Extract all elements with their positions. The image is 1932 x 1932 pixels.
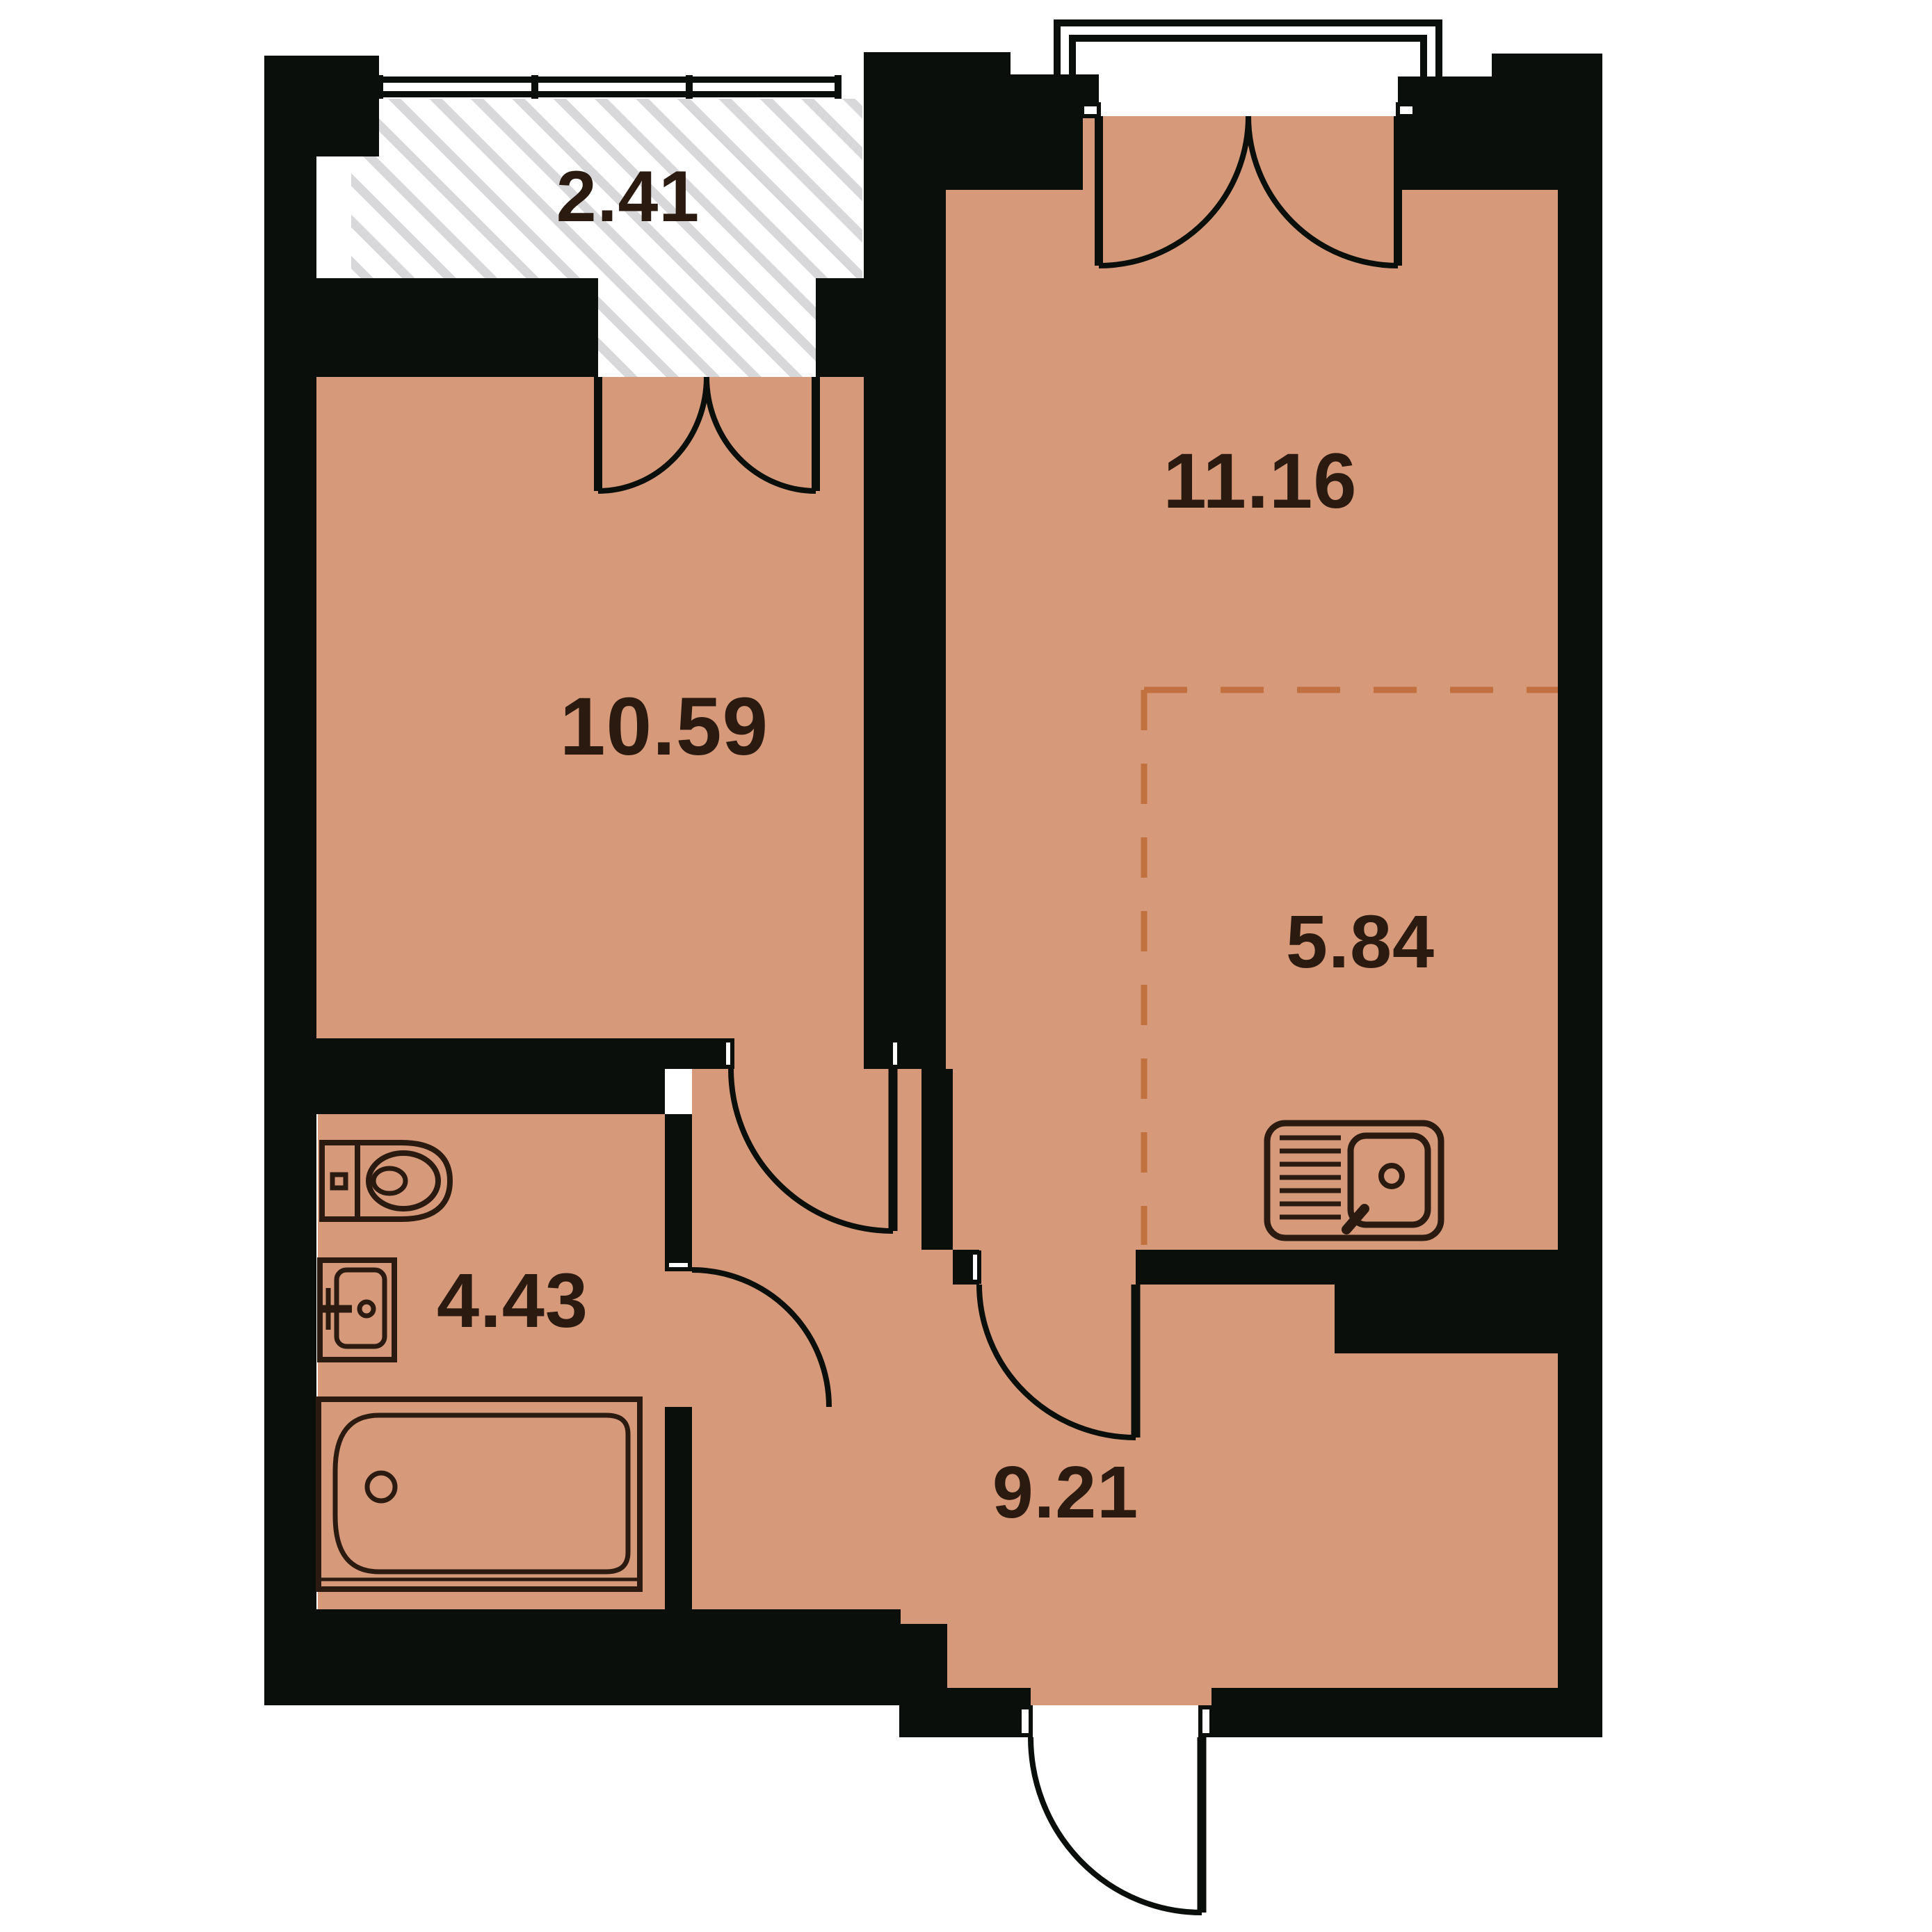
balcony-area-label: 2.41 — [556, 156, 700, 237]
open-balcony-outline — [1057, 23, 1439, 77]
wall-pillar-living-right — [1398, 77, 1492, 190]
wall-right-exterior — [1558, 190, 1602, 1737]
wall-corridor-top-left — [665, 1038, 731, 1069]
floor-door-threshold-bathroom — [665, 1270, 692, 1407]
wall-bottom-left-of-door — [899, 1688, 1031, 1737]
entrance-door-swing-icon — [1031, 1737, 1202, 1913]
floor-bedroom — [316, 278, 864, 1038]
hallway-area-label: 9.21 — [992, 1451, 1138, 1533]
wall-bathroom-right-lower — [665, 1407, 692, 1609]
wall-pillar-living-left — [864, 74, 1083, 190]
wall-top-left-pillar — [264, 56, 379, 156]
wall-top-middle-band — [864, 52, 1011, 74]
living-room-area-label: 11.16 — [1163, 437, 1357, 524]
balcony-railing-icon — [376, 75, 842, 99]
kitchen-zone-area-label: 5.84 — [1286, 899, 1435, 983]
bathroom-area-label: 4.43 — [437, 1258, 588, 1344]
wall-top-right-corner — [1492, 54, 1602, 190]
floor-plan-drawing: 2.41 11.16 10.59 5.84 4.43 9.21 — [0, 0, 1932, 1932]
wall-kitchen-bottom — [1136, 1250, 1559, 1285]
wall-bedroom-bathroom — [316, 1038, 665, 1114]
wall-balcony-bottom-right — [816, 278, 864, 377]
wall-entry-vestibule-bar — [899, 1624, 947, 1690]
floor-plan-page: 2.41 11.16 10.59 5.84 4.43 9.21 — [0, 0, 1932, 1932]
wall-between-rooms — [864, 190, 946, 1069]
wall-balcony-bottom-left — [316, 278, 598, 377]
wall-corridor-kitchen — [921, 1069, 953, 1250]
wall-left-exterior — [264, 56, 316, 1705]
wall-bathroom-right-upper — [665, 1114, 692, 1270]
wall-kitchen-bottom-block — [1335, 1285, 1559, 1353]
wall-bottom-left — [264, 1609, 901, 1705]
wall-bottom-right-of-door — [1211, 1688, 1602, 1737]
bedroom-area-label: 10.59 — [560, 681, 768, 773]
